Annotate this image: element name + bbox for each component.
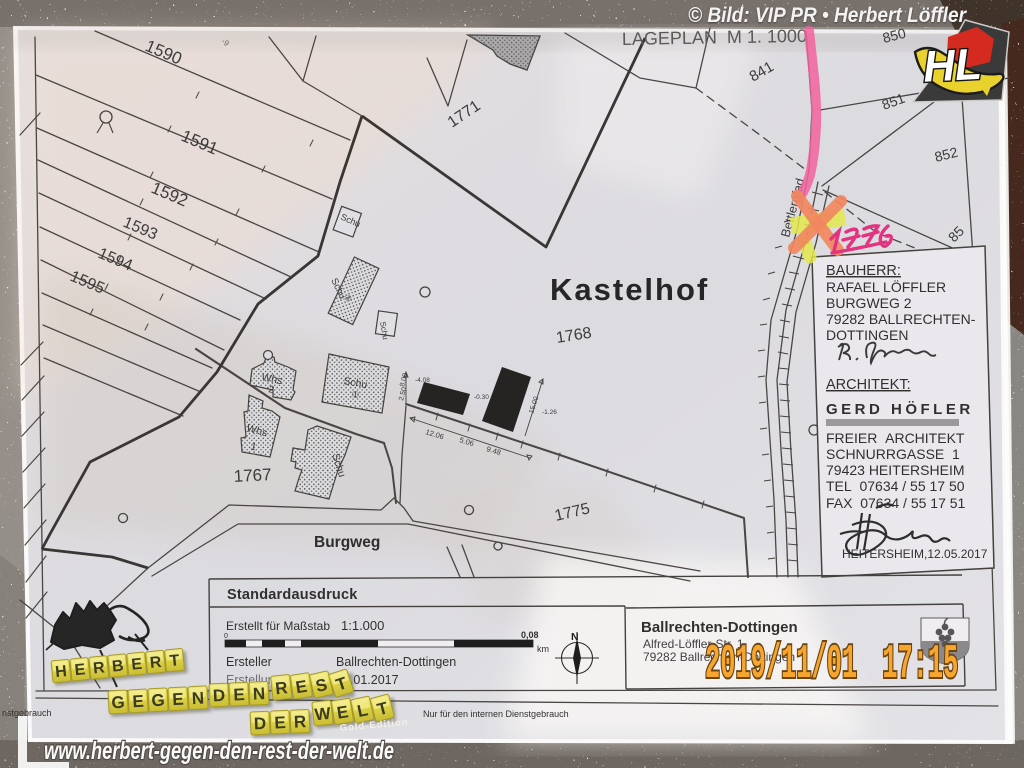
svg-text:BAUHERR:: BAUHERR: (826, 263, 901, 279)
svg-text:GERD HÖFLER: GERD HÖFLER (826, 401, 974, 418)
svg-text:W: W (314, 704, 333, 725)
svg-text:Kastelhof: Kastelhof (550, 272, 709, 307)
svg-text:79423 HEITERSHEIM: 79423 HEITERSHEIM (826, 462, 965, 478)
svg-text:-4.08: -4.08 (415, 377, 430, 384)
svg-text:Burgweg: Burgweg (314, 534, 380, 551)
svg-text:G: G (151, 691, 165, 711)
svg-text:E: E (132, 692, 144, 712)
svg-text:BURGWEG 2: BURGWEG 2 (826, 295, 912, 311)
svg-text:FREIER ARCHITEKT: FREIER ARCHITEKT (826, 430, 965, 446)
svg-text:RAFAEL LÖFFLER: RAFAEL LÖFFLER (826, 278, 946, 295)
svg-text:79282 BALLRECHTEN-: 79282 BALLRECHTEN- (826, 311, 976, 327)
svg-text:HL: HL (922, 40, 983, 92)
svg-text:SCHNURRGASSE 1: SCHNURRGASSE 1 (826, 446, 960, 462)
svg-text:R: R (293, 712, 306, 732)
svg-text:G: G (111, 693, 125, 713)
svg-text:E: E (172, 690, 184, 710)
svg-text:2019/11/01 17:15: 2019/11/01 17:15 (705, 637, 958, 690)
svg-text:-0.30: -0.30 (474, 394, 489, 401)
svg-text:www.herbert-gegen-den-rest-der: www.herbert-gegen-den-rest-der-welt.de (44, 737, 394, 765)
svg-text:ARCHITEKT:: ARCHITEKT: (826, 377, 911, 393)
svg-text:N: N (191, 688, 204, 708)
svg-text:①: ① (351, 389, 361, 400)
svg-text:TEL 07634 / 55 17 50: TEL 07634 / 55 17 50 (826, 478, 965, 494)
svg-text:FAX 07634 / 55 17 51: FAX 07634 / 55 17 51 (826, 495, 966, 511)
svg-text:1767: 1767 (233, 465, 272, 486)
svg-text:-1.26: -1.26 (542, 409, 557, 416)
svg-text:DOTTINGEN: DOTTINGEN (826, 327, 908, 343)
